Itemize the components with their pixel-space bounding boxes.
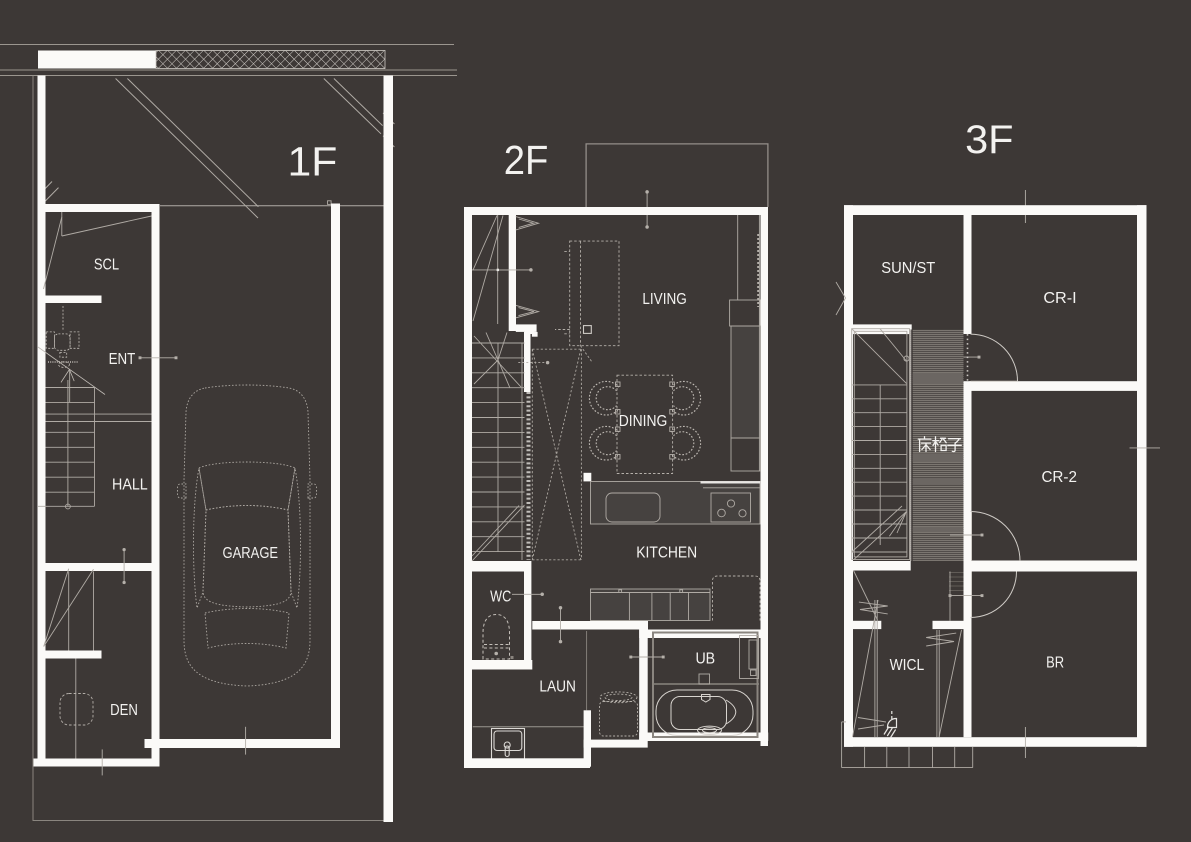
- svg-text:1F: 1F: [288, 138, 338, 184]
- svg-text:WICL: WICL: [890, 657, 925, 674]
- svg-text:UB: UB: [695, 651, 715, 668]
- svg-text:BR: BR: [1046, 655, 1064, 672]
- svg-text:LAUN: LAUN: [539, 679, 576, 696]
- svg-text:DEN: DEN: [110, 702, 138, 719]
- svg-text:SUN/ST: SUN/ST: [881, 260, 936, 277]
- svg-text:CR-2: CR-2: [1041, 469, 1077, 486]
- svg-text:3F: 3F: [965, 118, 1013, 162]
- svg-text:DINING: DINING: [619, 413, 668, 430]
- svg-text:GARAGE: GARAGE: [223, 545, 279, 562]
- svg-text:HALL: HALL: [112, 477, 148, 494]
- svg-text:CR-I: CR-I: [1043, 290, 1076, 307]
- svg-text:SCL: SCL: [94, 257, 120, 274]
- svg-text:WC: WC: [490, 589, 511, 606]
- svg-text:LIVING: LIVING: [642, 291, 686, 308]
- svg-text:2F: 2F: [504, 137, 549, 183]
- svg-text:KITCHEN: KITCHEN: [636, 545, 697, 562]
- svg-text:ENT: ENT: [109, 351, 136, 368]
